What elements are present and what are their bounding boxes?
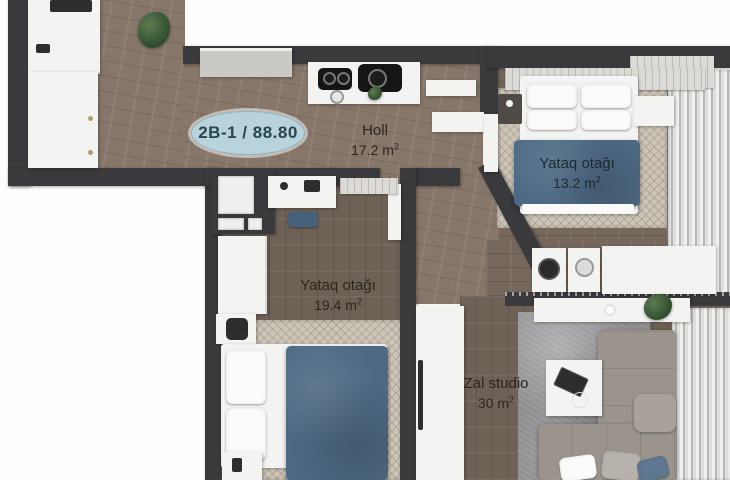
entry-wall-hook <box>36 44 50 53</box>
laundry-counter <box>602 246 716 294</box>
wall-bedroom-large-right <box>400 168 416 480</box>
burner <box>323 72 336 85</box>
entry-shelf-niche <box>50 0 92 12</box>
room-area-sup: 2 <box>509 394 514 404</box>
room-area: 17.2 m2 <box>351 141 399 159</box>
kitchen-sink <box>330 90 344 104</box>
room-name: Zal studio <box>463 374 528 394</box>
radiator <box>340 178 398 194</box>
hall-wall-shelf <box>426 80 476 96</box>
desk-chair <box>226 318 248 340</box>
room-label-bedroom-large: Yataq otağı 19.4 m2 <box>282 272 394 318</box>
room-label-living: Zal studio 30 m2 <box>444 370 548 416</box>
room-area-sup: 2 <box>596 174 601 184</box>
sofa-pillow-white <box>559 454 598 480</box>
bedroom-small-door <box>484 114 498 172</box>
room-area-sup: 2 <box>394 141 399 151</box>
wall-entry-left <box>8 0 30 186</box>
bedside-item <box>232 458 242 472</box>
room-label-holl: Holl 17.2 m2 <box>330 116 420 164</box>
nightstand-left <box>498 94 522 124</box>
burner <box>368 69 387 88</box>
pillow <box>527 84 577 108</box>
sofa-back-cushion <box>634 394 676 432</box>
bed-large-blanket <box>286 346 388 480</box>
dresser-knob <box>88 116 93 121</box>
table-decor <box>572 392 588 408</box>
room-name: Holl <box>362 121 388 141</box>
pillow <box>226 350 266 404</box>
vanity-stool <box>288 212 318 227</box>
vanity-mirror <box>304 180 320 192</box>
hall-bench <box>432 112 484 132</box>
glass-pane <box>248 218 262 230</box>
room-area-value: 17.2 m <box>351 142 394 158</box>
room-name: Yataq otağı <box>300 276 376 296</box>
room-area-value: 13.2 m <box>553 175 596 191</box>
room-name: Yataq otağı <box>539 154 615 174</box>
dresser-knob <box>88 150 93 155</box>
console-decor <box>606 306 614 314</box>
vanity-desk <box>268 176 336 208</box>
bedside-cabinet <box>222 452 262 480</box>
pillow <box>527 110 577 130</box>
pillow <box>581 110 631 130</box>
wardrobe-left <box>218 236 267 314</box>
room-area-sup: 2 <box>357 296 362 306</box>
bed-small-sheet-edge <box>522 204 634 214</box>
floorplan: Yataq otağı 13.2 m2 2B-1 / 88.80 Holl 17… <box>0 0 730 480</box>
room-area: 19.4 m2 <box>314 296 362 314</box>
plan-badge-label: 2B-1 / 88.80 <box>198 123 298 143</box>
living-curtain <box>672 308 730 480</box>
glass-pane <box>218 176 254 214</box>
nightstand-right <box>634 96 674 126</box>
sofa-pillow-gray <box>601 450 642 480</box>
room-area: 30 m2 <box>478 394 514 412</box>
wall-entry-bottom <box>8 168 218 186</box>
outside-balcony <box>183 0 730 47</box>
glass-pane <box>218 218 244 230</box>
room-area-value: 30 m <box>478 395 509 411</box>
plan-badge: 2B-1 / 88.80 <box>191 111 305 155</box>
nightstand-lamp <box>506 100 513 107</box>
burner <box>337 72 350 85</box>
pony-wall <box>200 48 292 77</box>
room-area: 13.2 m2 <box>553 174 601 192</box>
cabinet-slot <box>418 360 423 430</box>
pillow <box>581 84 631 108</box>
appliance-door <box>575 258 594 277</box>
washing-machine-door <box>538 258 560 280</box>
wall-corridor-top <box>412 168 460 186</box>
vanity-item <box>280 182 288 190</box>
room-area-value: 19.4 m <box>314 297 357 313</box>
bed-small-blanket: Yataq otağı 13.2 m2 <box>514 140 640 206</box>
